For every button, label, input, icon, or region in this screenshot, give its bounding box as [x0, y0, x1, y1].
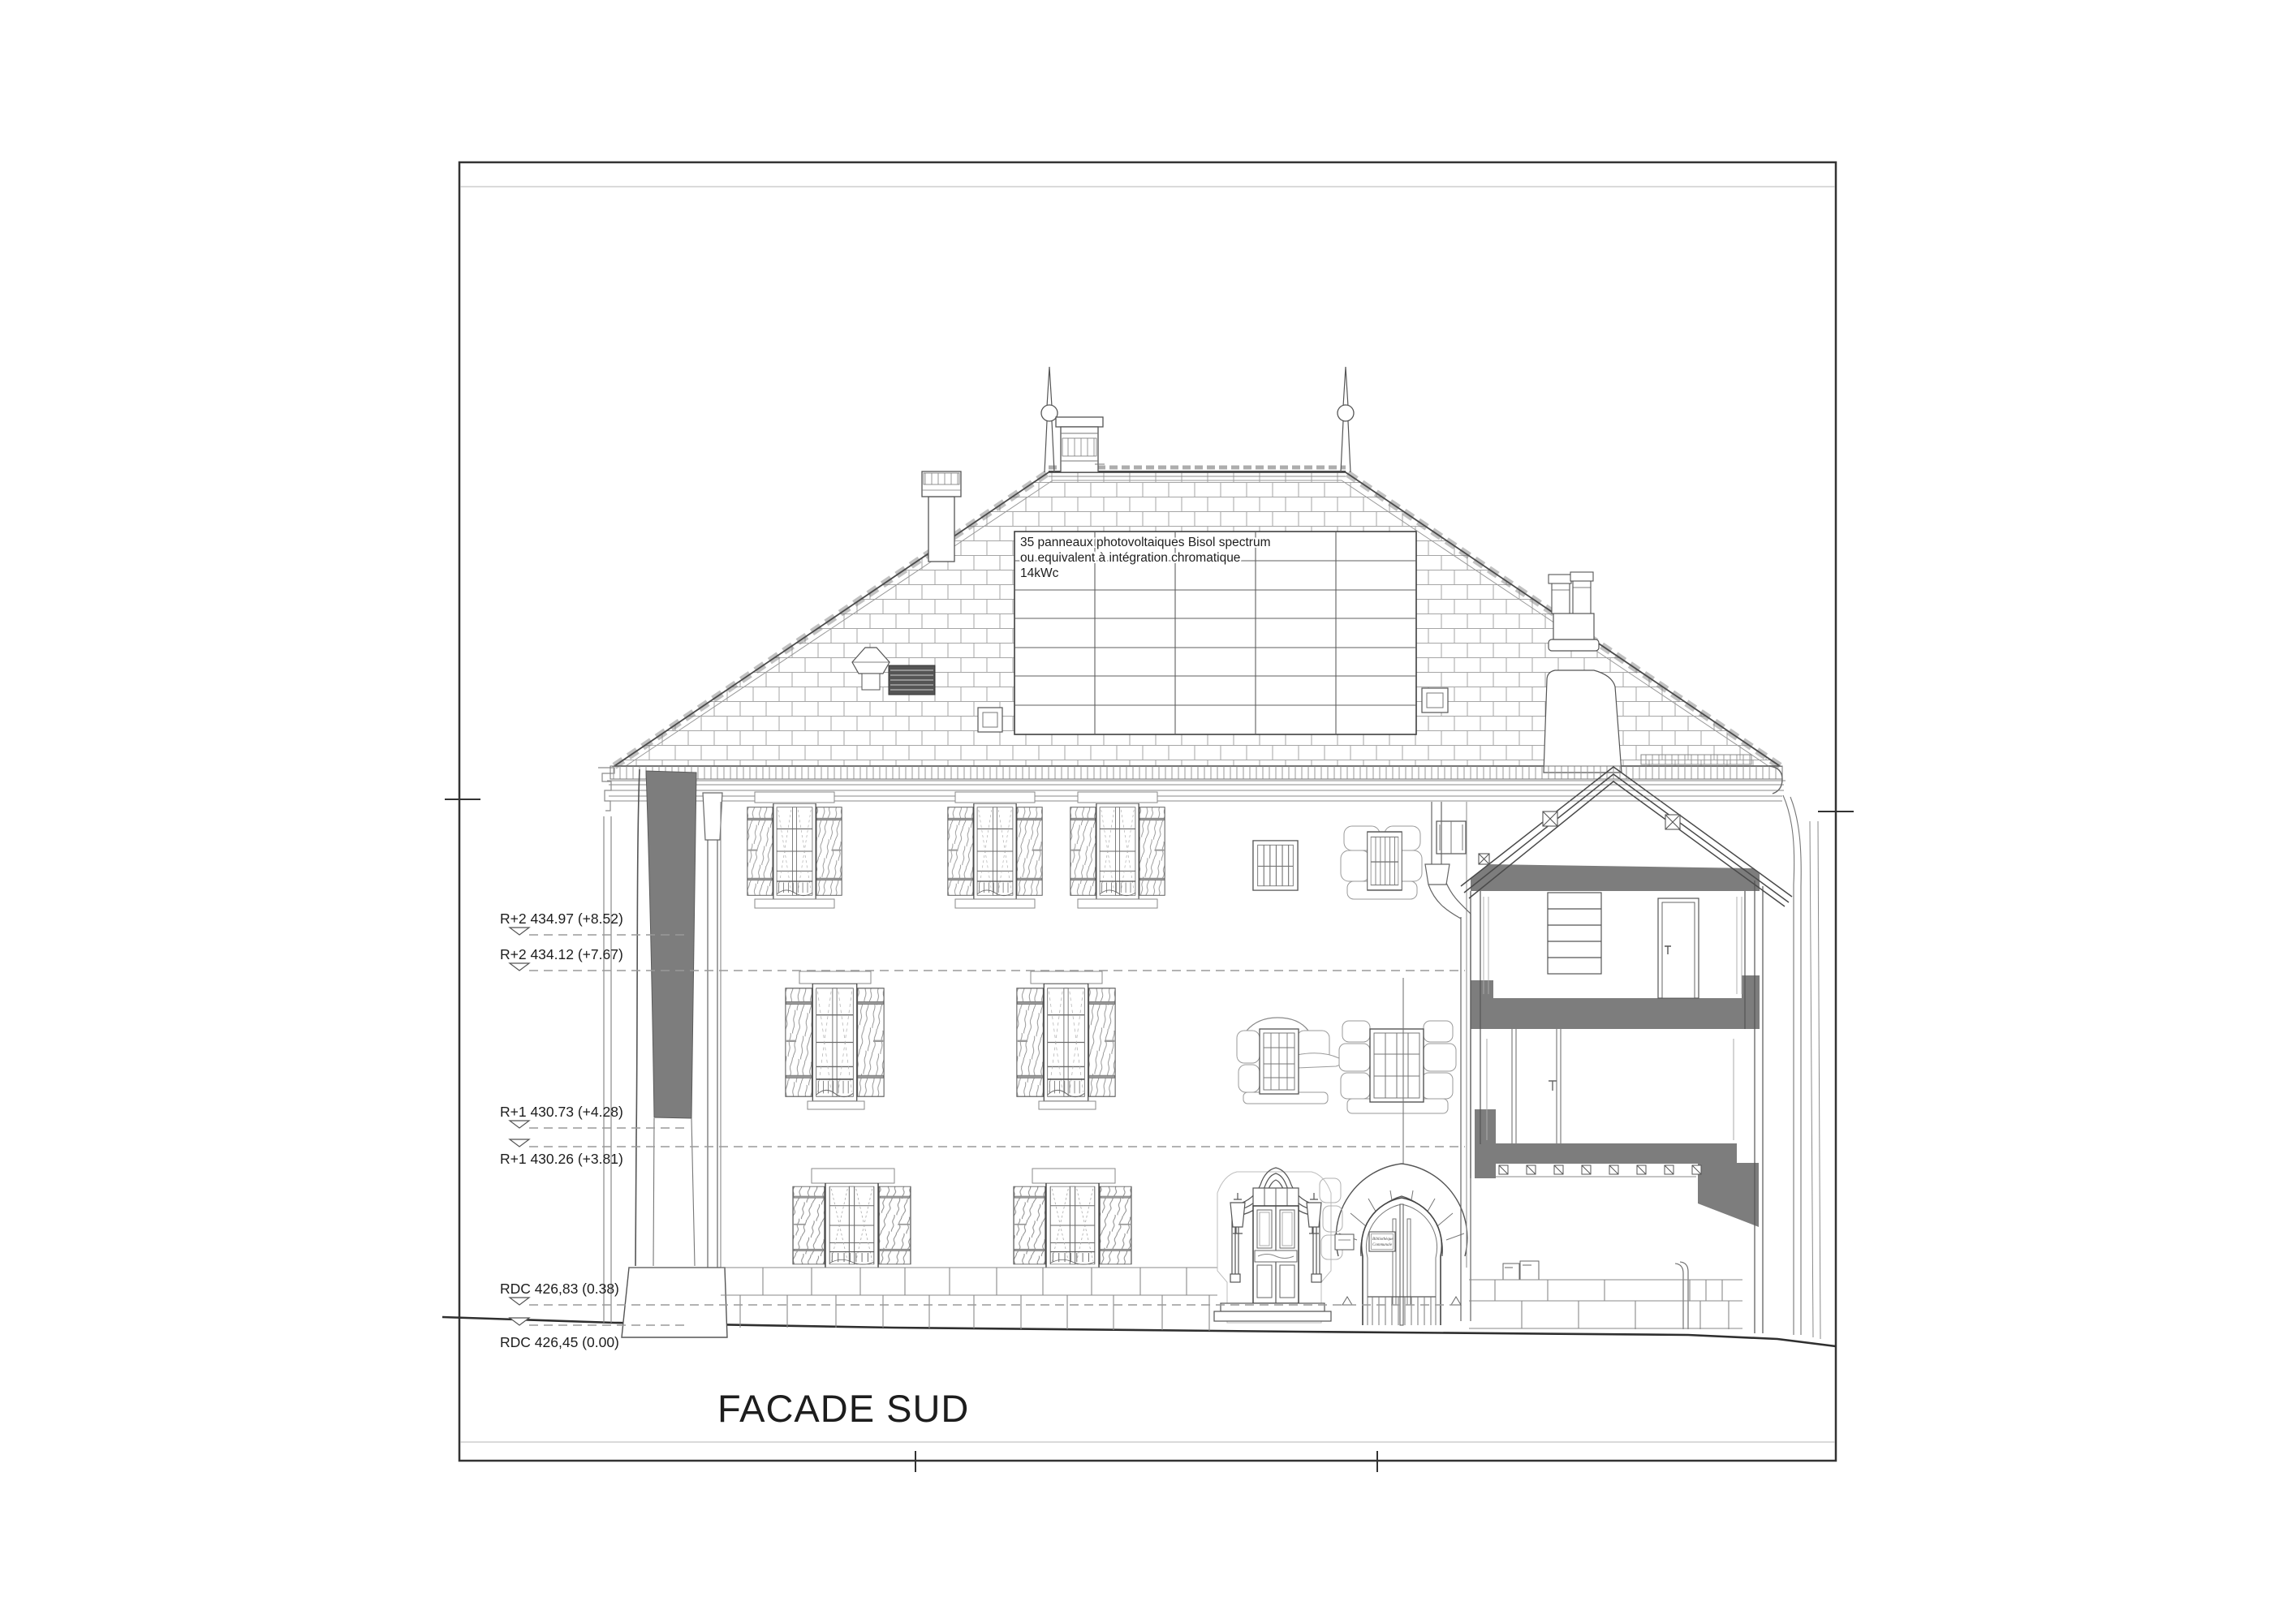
stone-base	[721, 1268, 1217, 1331]
solar-note-line1: 35 panneaux photovoltaiques Bisol spectr…	[1020, 536, 1270, 549]
slab-roof-gray	[1471, 864, 1760, 891]
drawing-title: FACADE SUD	[717, 1387, 969, 1430]
joist-row	[1499, 1165, 1701, 1174]
shelf-unit	[1548, 893, 1601, 974]
level-label-r2: R+2 434.12 (+7.67)	[500, 946, 623, 962]
solar-note-line3: 14kWc	[1020, 566, 1059, 580]
footing	[622, 1268, 727, 1337]
interior-door-lower	[1487, 1029, 1734, 1143]
snow-guard-bar	[1641, 755, 1751, 764]
window-r1-1	[786, 984, 884, 1101]
downpipe-far-right	[1783, 795, 1801, 1335]
entrance-door	[1214, 1168, 1331, 1323]
chimney-ridge	[1056, 417, 1105, 472]
windows-r1	[786, 971, 1456, 1113]
window-barred-small	[1253, 841, 1298, 890]
windows-r2	[747, 792, 1466, 908]
window-rdc-2	[1014, 1183, 1131, 1268]
level-label-r2-haut: R+2 434.97 (+8.52)	[500, 911, 623, 927]
window-r1-2	[1017, 984, 1115, 1101]
facade-left-section	[622, 769, 727, 1337]
slab-low-gray	[1493, 1143, 1737, 1164]
arch-sign-line1: Bibliothèque	[1372, 1238, 1394, 1242]
downpipe-left	[708, 840, 717, 1268]
windows-rdc	[793, 1169, 1131, 1268]
wing-stones	[1469, 1280, 1742, 1329]
window-rdc-1	[793, 1183, 911, 1268]
finial-left	[1041, 367, 1058, 472]
window-ornate-center	[1237, 1018, 1342, 1104]
window-r2-3	[1070, 803, 1165, 899]
window-barred-stone	[1341, 826, 1422, 899]
arch-plaque	[1335, 1234, 1354, 1250]
arch-sign-line2: Communale	[1372, 1243, 1393, 1247]
interior-door-upper	[1658, 898, 1699, 998]
solar-panel-array: 35 panneaux photovoltaiques Bisol spectr…	[1014, 532, 1416, 734]
section-wing	[1461, 767, 1820, 1339]
level-label-r1-haut: R+1 430.73 (+4.28)	[500, 1104, 623, 1120]
level-label-rdc-haut: RDC 426,83 (0.38)	[500, 1281, 619, 1297]
wall-sloped-gray	[1698, 1163, 1759, 1227]
arch-sign: Bibliothèque Communale	[1369, 1232, 1395, 1251]
architectural-sheet: 35 panneaux photovoltaiques Bisol spectr…	[0, 0, 2296, 1623]
crates	[1503, 1261, 1539, 1280]
window-r2-2	[948, 803, 1042, 899]
facade-sud-elevation-drawing: 35 panneaux photovoltaiques Bisol spectr…	[0, 0, 2296, 1623]
neighbor-building	[598, 768, 614, 1323]
solar-note-line2: ou equivalent à intégration chromatique	[1020, 551, 1240, 565]
roof-vent-square-right	[1422, 688, 1448, 712]
window-barred-r1	[1339, 1021, 1456, 1113]
finial-right	[1338, 367, 1354, 472]
downpipe-hopper-left	[703, 793, 722, 840]
window-r2-1	[747, 803, 842, 899]
roof-grille-dark	[889, 665, 935, 695]
slab-mid-gray	[1491, 998, 1743, 1029]
level-label-rdc: RDC 426,45 (0.00)	[500, 1334, 619, 1350]
cut-wall-gray	[646, 771, 696, 1118]
level-label-r1: R+1 430.26 (+3.81)	[500, 1151, 623, 1167]
roof-vent-square-left	[978, 708, 1002, 732]
passage-pipe	[1675, 1262, 1688, 1329]
